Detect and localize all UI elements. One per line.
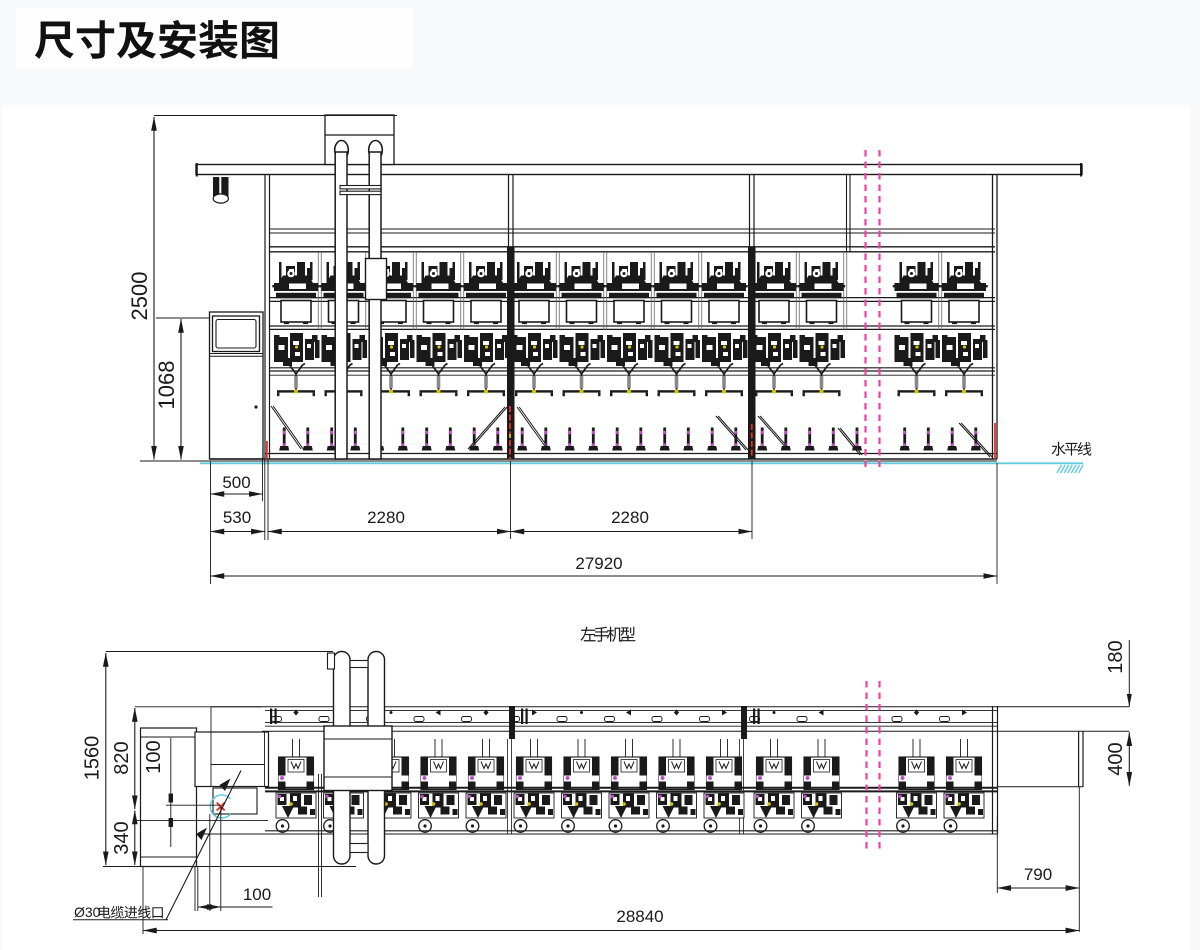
svg-text:28840: 28840	[616, 907, 663, 926]
svg-text:1560: 1560	[82, 736, 104, 781]
svg-text:2500: 2500	[127, 272, 152, 321]
svg-text:400: 400	[1105, 742, 1127, 775]
svg-text:820: 820	[111, 741, 133, 774]
svg-text:500: 500	[222, 473, 250, 492]
svg-text:27920: 27920	[575, 554, 622, 573]
svg-text:340: 340	[111, 821, 133, 854]
svg-text:100: 100	[243, 885, 271, 904]
svg-text:790: 790	[1024, 865, 1052, 884]
svg-text:530: 530	[223, 508, 251, 527]
svg-text:180: 180	[1105, 640, 1127, 673]
svg-text:2280: 2280	[367, 508, 405, 527]
svg-text:Ø30: Ø30	[74, 904, 101, 920]
svg-text:1068: 1068	[154, 361, 179, 410]
svg-text:2280: 2280	[611, 508, 649, 527]
svg-text:100: 100	[143, 740, 165, 773]
